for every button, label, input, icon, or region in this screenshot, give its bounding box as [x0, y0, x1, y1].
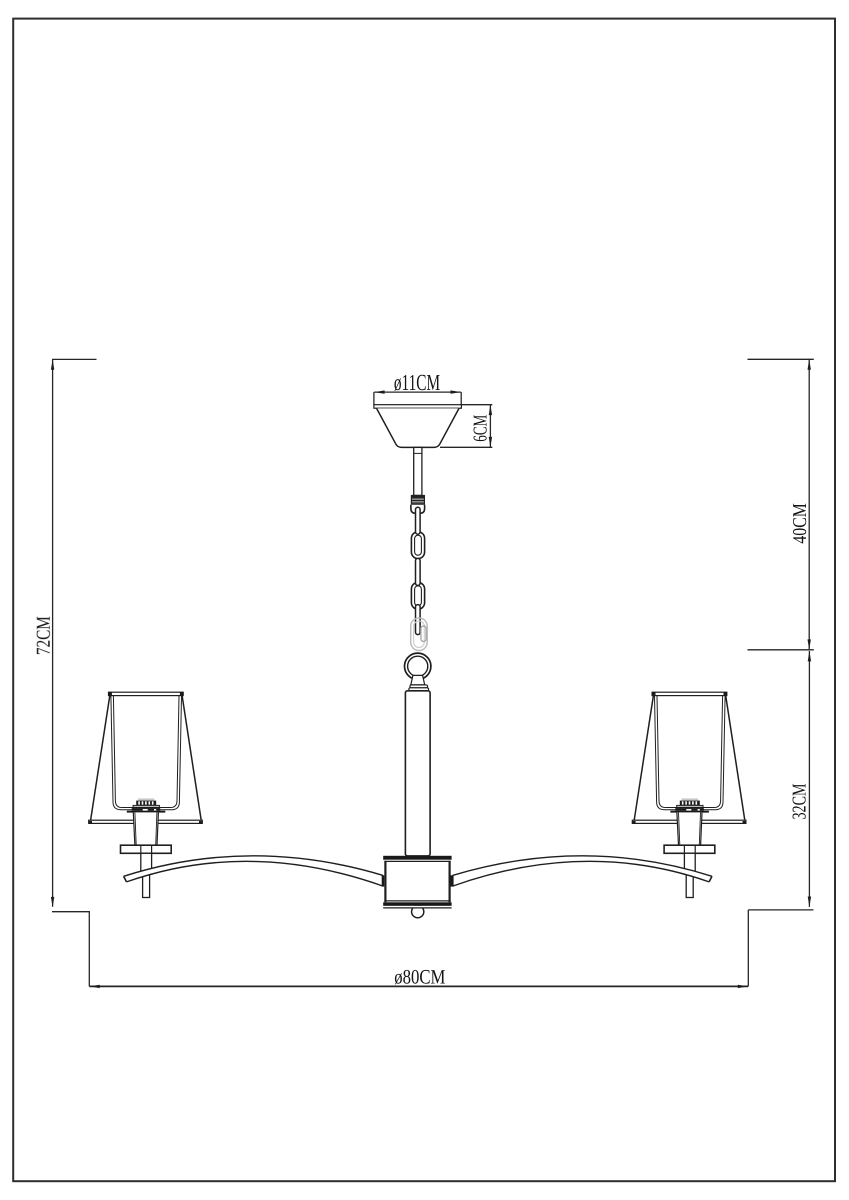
svg-text:6CM: 6CM	[470, 415, 491, 442]
svg-text:ø11CM: ø11CM	[394, 370, 440, 395]
svg-text:40CM: 40CM	[790, 503, 811, 544]
svg-text:32CM: 32CM	[790, 784, 811, 820]
svg-text:ø80CM: ø80CM	[394, 966, 445, 988]
svg-text:72CM: 72CM	[34, 616, 55, 655]
